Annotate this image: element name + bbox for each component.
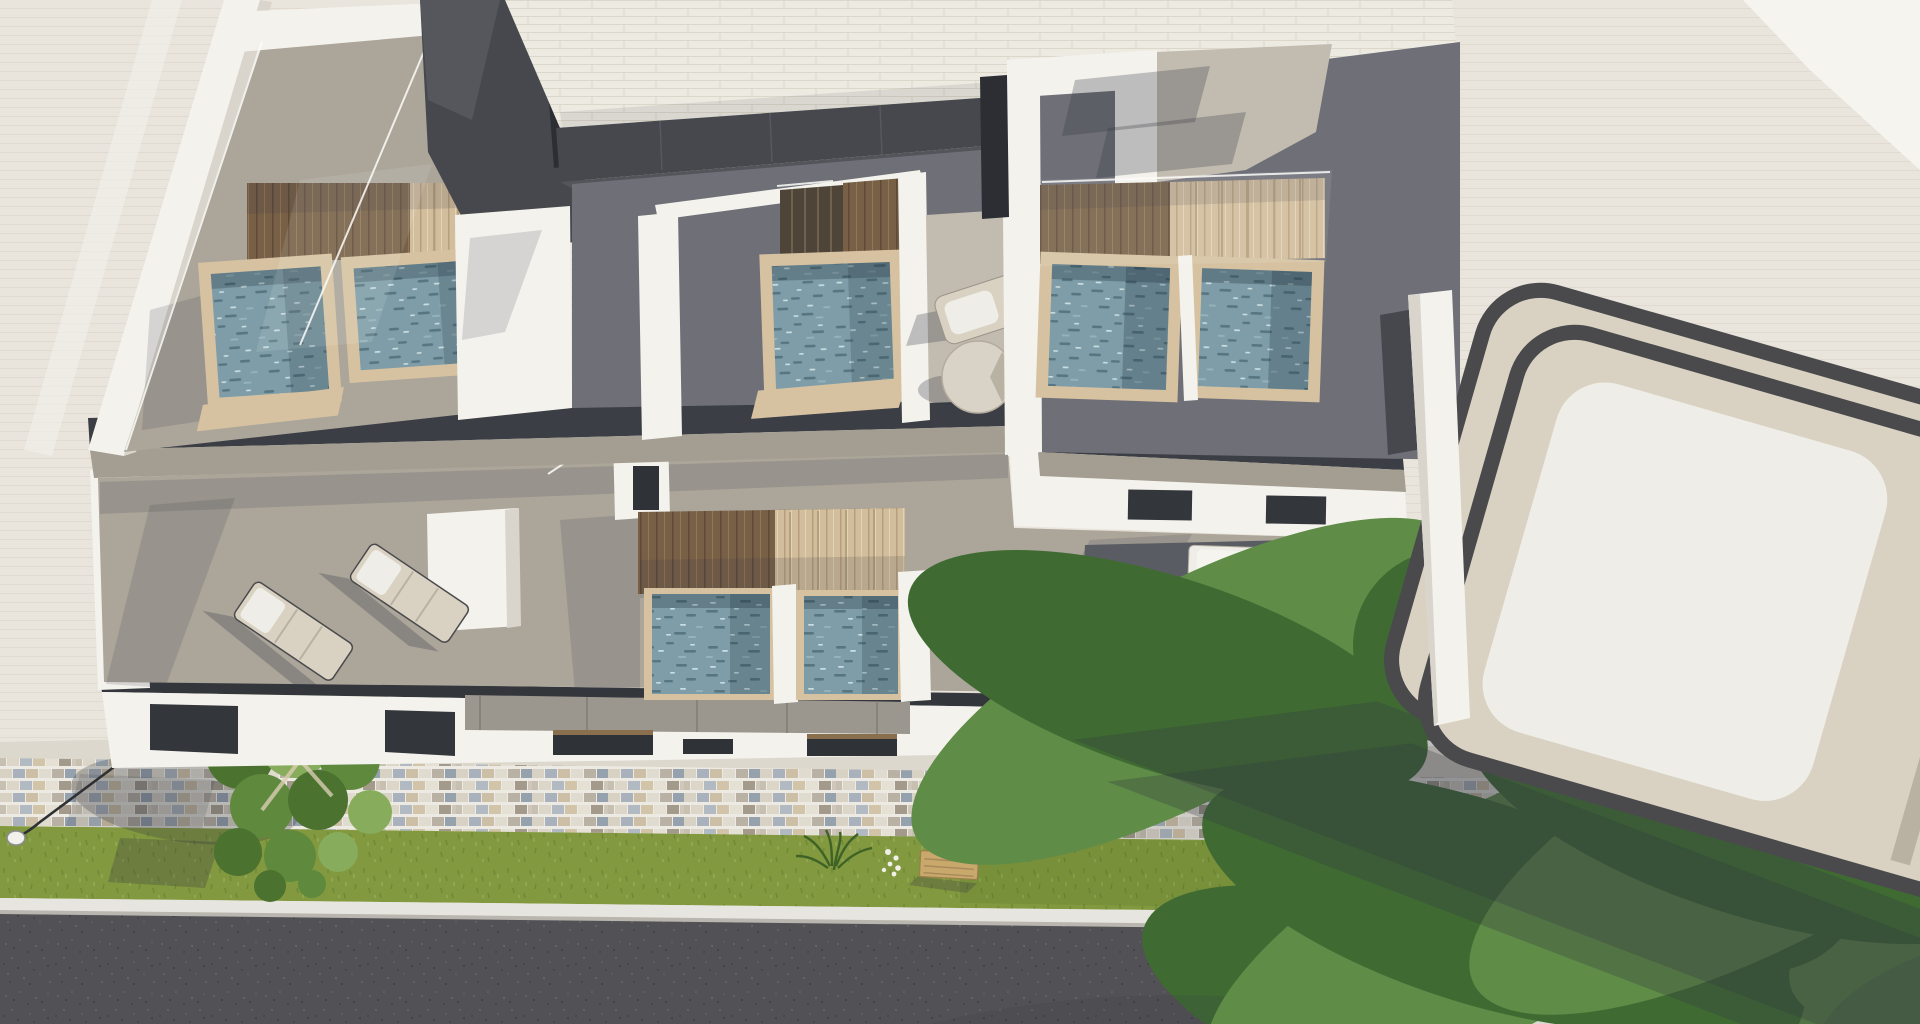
aerial-render-svg: [0, 0, 1920, 1024]
middle-pool-left: [644, 588, 778, 700]
pool-divider-wall: [772, 584, 798, 704]
unit2-divider-wall: [638, 212, 682, 440]
pool-3: [745, 249, 909, 418]
glass-screen-right: [1040, 170, 1332, 266]
middle-pool-right: [796, 590, 906, 700]
right-unit-door-slot: [980, 75, 1009, 219]
right-unit-wall-c: [1002, 90, 1042, 455]
lamp-head-left-icon: [7, 831, 25, 845]
bulkhead-shade: [505, 508, 521, 628]
render-canvas: [0, 0, 1920, 1024]
wood-lintel: [553, 730, 653, 735]
terrace-door: [633, 466, 659, 510]
mid-window-2: [1266, 495, 1326, 524]
tree-shadow-on-lawn: [108, 838, 220, 888]
wood-lintel-2: [807, 734, 897, 739]
mid-window-1: [1128, 489, 1193, 520]
pool-4: [1036, 252, 1183, 403]
pool-5: [1186, 256, 1325, 403]
